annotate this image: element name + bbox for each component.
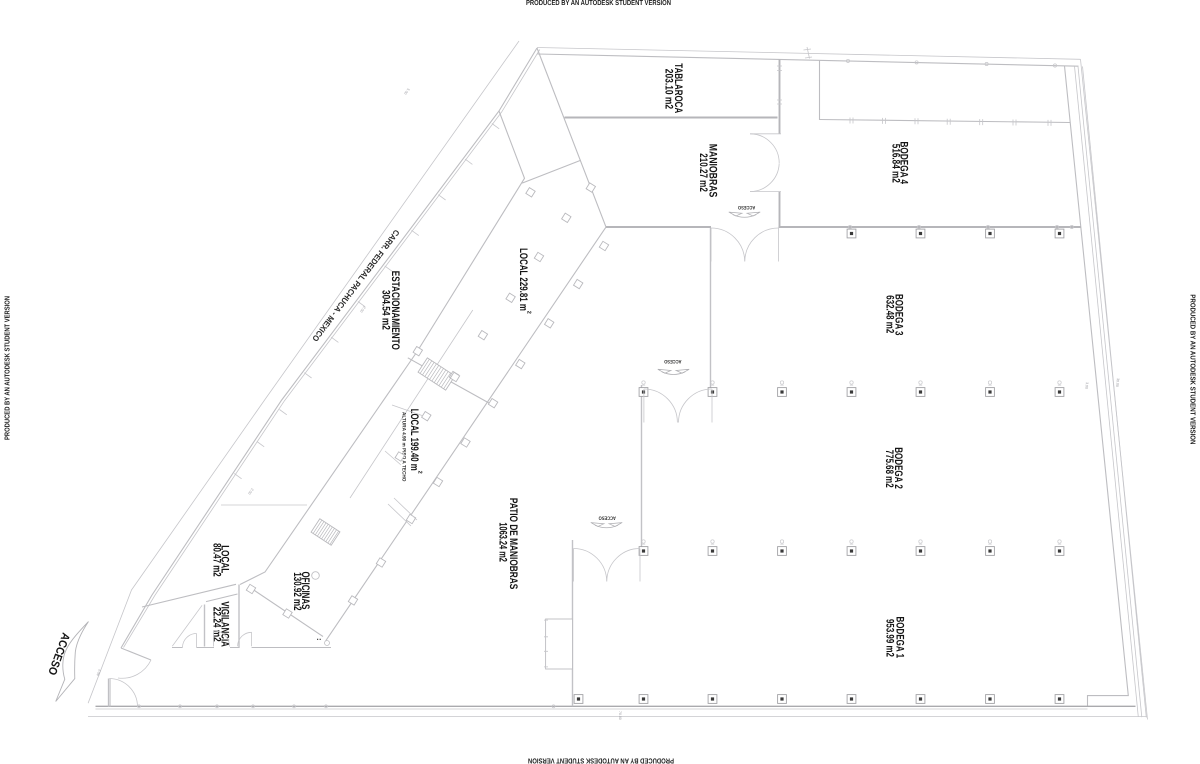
svg-text:304.54 m2: 304.54 m2 [379, 290, 391, 330]
svg-text:ACCESO: ACCESO [738, 204, 755, 210]
svg-text:ACCESO: ACCESO [664, 358, 681, 364]
svg-text:PRODUCED BY AN AUTODESK STUDEN: PRODUCED BY AN AUTODESK STUDENT VERSION [2, 296, 11, 440]
svg-text:516.84 m2: 516.84 m2 [890, 144, 902, 183]
svg-text:203.10 m2: 203.10 m2 [663, 69, 675, 109]
svg-text:PRODUCED BY AN AUTODESK STUDEN: PRODUCED BY AN AUTODESK STUDENT VERSION [1189, 294, 1198, 444]
svg-text:LOCAL 229.81 m: LOCAL 229.81 m [517, 248, 529, 311]
svg-text:210.27 m2: 210.27 m2 [697, 153, 709, 192]
svg-text:22.24 m2: 22.24 m2 [211, 607, 223, 642]
svg-text:953.99 m2: 953.99 m2 [884, 619, 896, 657]
svg-text:ALTURA 4.90 m PISO A TECHO: ALTURA 4.90 m PISO A TECHO [400, 412, 406, 481]
svg-text:LOCAL 199.40 m: LOCAL 199.40 m [408, 409, 420, 471]
svg-text:775.68 m2: 775.68 m2 [883, 450, 895, 488]
svg-text:2: 2 [525, 311, 531, 314]
svg-text:ACCESO: ACCESO [599, 514, 616, 520]
svg-text:PRODUCED BY AN AUTODESK STUDEN: PRODUCED BY AN AUTODESK STUDENT VERSION [526, 0, 671, 7]
svg-text:80.47 m2: 80.47 m2 [210, 543, 222, 577]
svg-text:130.92 m2: 130.92 m2 [291, 572, 303, 610]
svg-text:1063.24 m2: 1063.24 m2 [496, 522, 508, 562]
svg-text:PRODUCED BY AN AUTODESK STUDEN: PRODUCED BY AN AUTODESK STUDENT VERSION [528, 756, 674, 764]
svg-text:632.48 m2: 632.48 m2 [884, 295, 896, 333]
svg-text:70.00: 70.00 [618, 711, 622, 720]
svg-text:3.00: 3.00 [1084, 382, 1089, 389]
svg-text:2: 2 [416, 471, 422, 474]
